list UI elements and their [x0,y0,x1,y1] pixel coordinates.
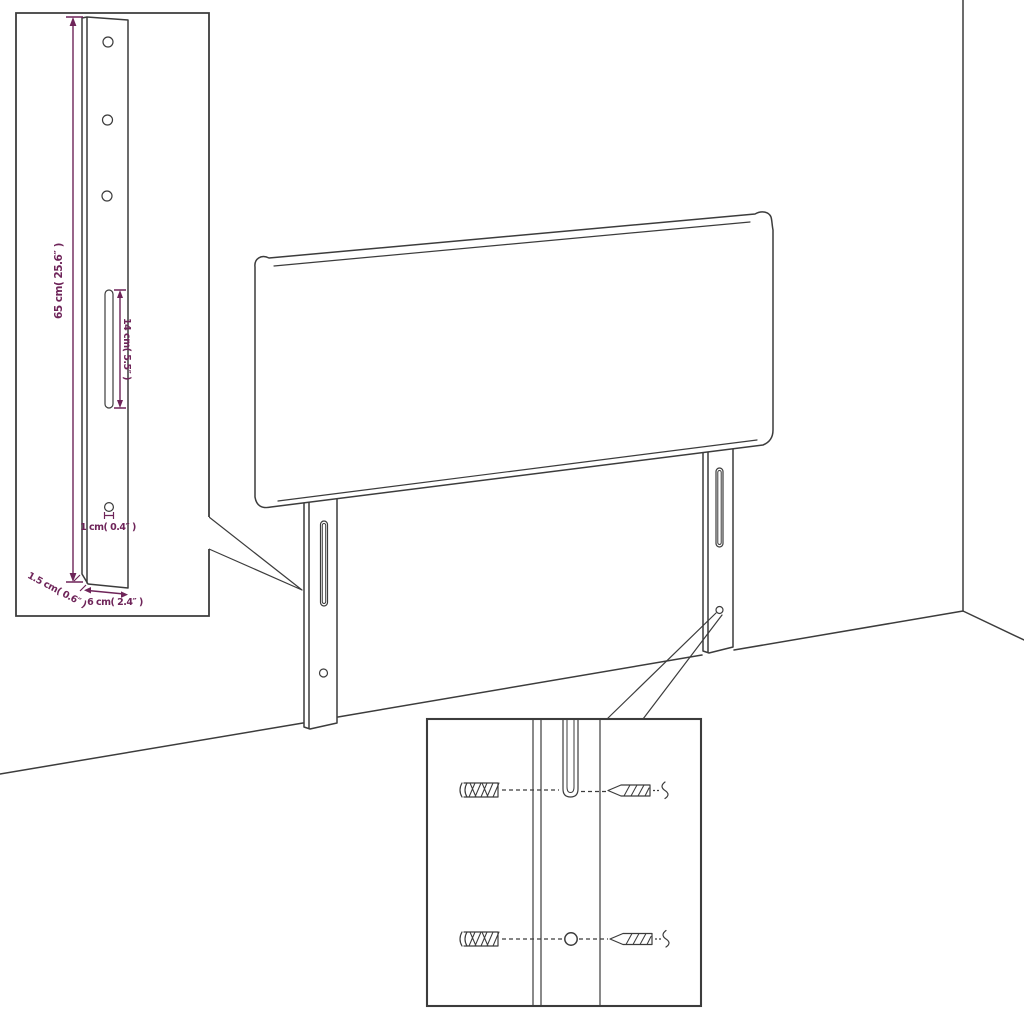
dim-6-label: 6 cm( 2.4″ ) [87,597,143,608]
plug-collar [460,783,467,797]
callout-left-inset [209,517,302,590]
screw-threads [624,785,649,796]
inset-slot-inner [567,719,574,793]
screw-threads [626,934,651,945]
leader-dashes [502,790,608,939]
screw-squiggle [662,782,668,799]
diagram-canvas: 65 cm( 25.6″ ) 14 cm( 5.5″ ) 1 cm( 0.4″ … [0,0,1024,1024]
plug-hatch [469,932,499,946]
plug-body [464,932,498,946]
screw-icon [608,782,668,799]
panel-outline [255,212,773,508]
mounting-inset-border [427,719,701,1006]
plug-hatch [469,783,499,797]
headboard-panel [255,212,773,508]
wall-plug-icon [460,783,499,797]
left-leg [304,485,337,729]
plug-collar [460,932,467,946]
wall-plug-icon [460,932,499,946]
inset-slot [563,719,578,797]
headboard-diagram: 65 cm( 25.6″ ) 14 cm( 5.5″ ) 1 cm( 0.4″ … [0,0,1024,1024]
mounting-detail-inset [427,719,701,1006]
screw-icon [610,931,669,948]
inset-leg-board [533,719,600,1006]
dim-14-label: 14 cm( 5.5″ ) [121,318,132,380]
dim-1-label: 1 cm( 0.4″ ) [80,522,136,533]
plug-body [464,783,498,797]
dim-65-label: 65 cm( 25.6″ ) [53,243,65,319]
inset-hole [565,933,577,945]
leg-detail-inset: 65 cm( 25.6″ ) 14 cm( 5.5″ ) 1 cm( 0.4″ … [16,13,209,616]
screw-squiggle [663,931,669,948]
callout-left-lines [209,517,302,590]
floor-line [0,611,963,774]
wall-baseline-right [963,611,1024,640]
